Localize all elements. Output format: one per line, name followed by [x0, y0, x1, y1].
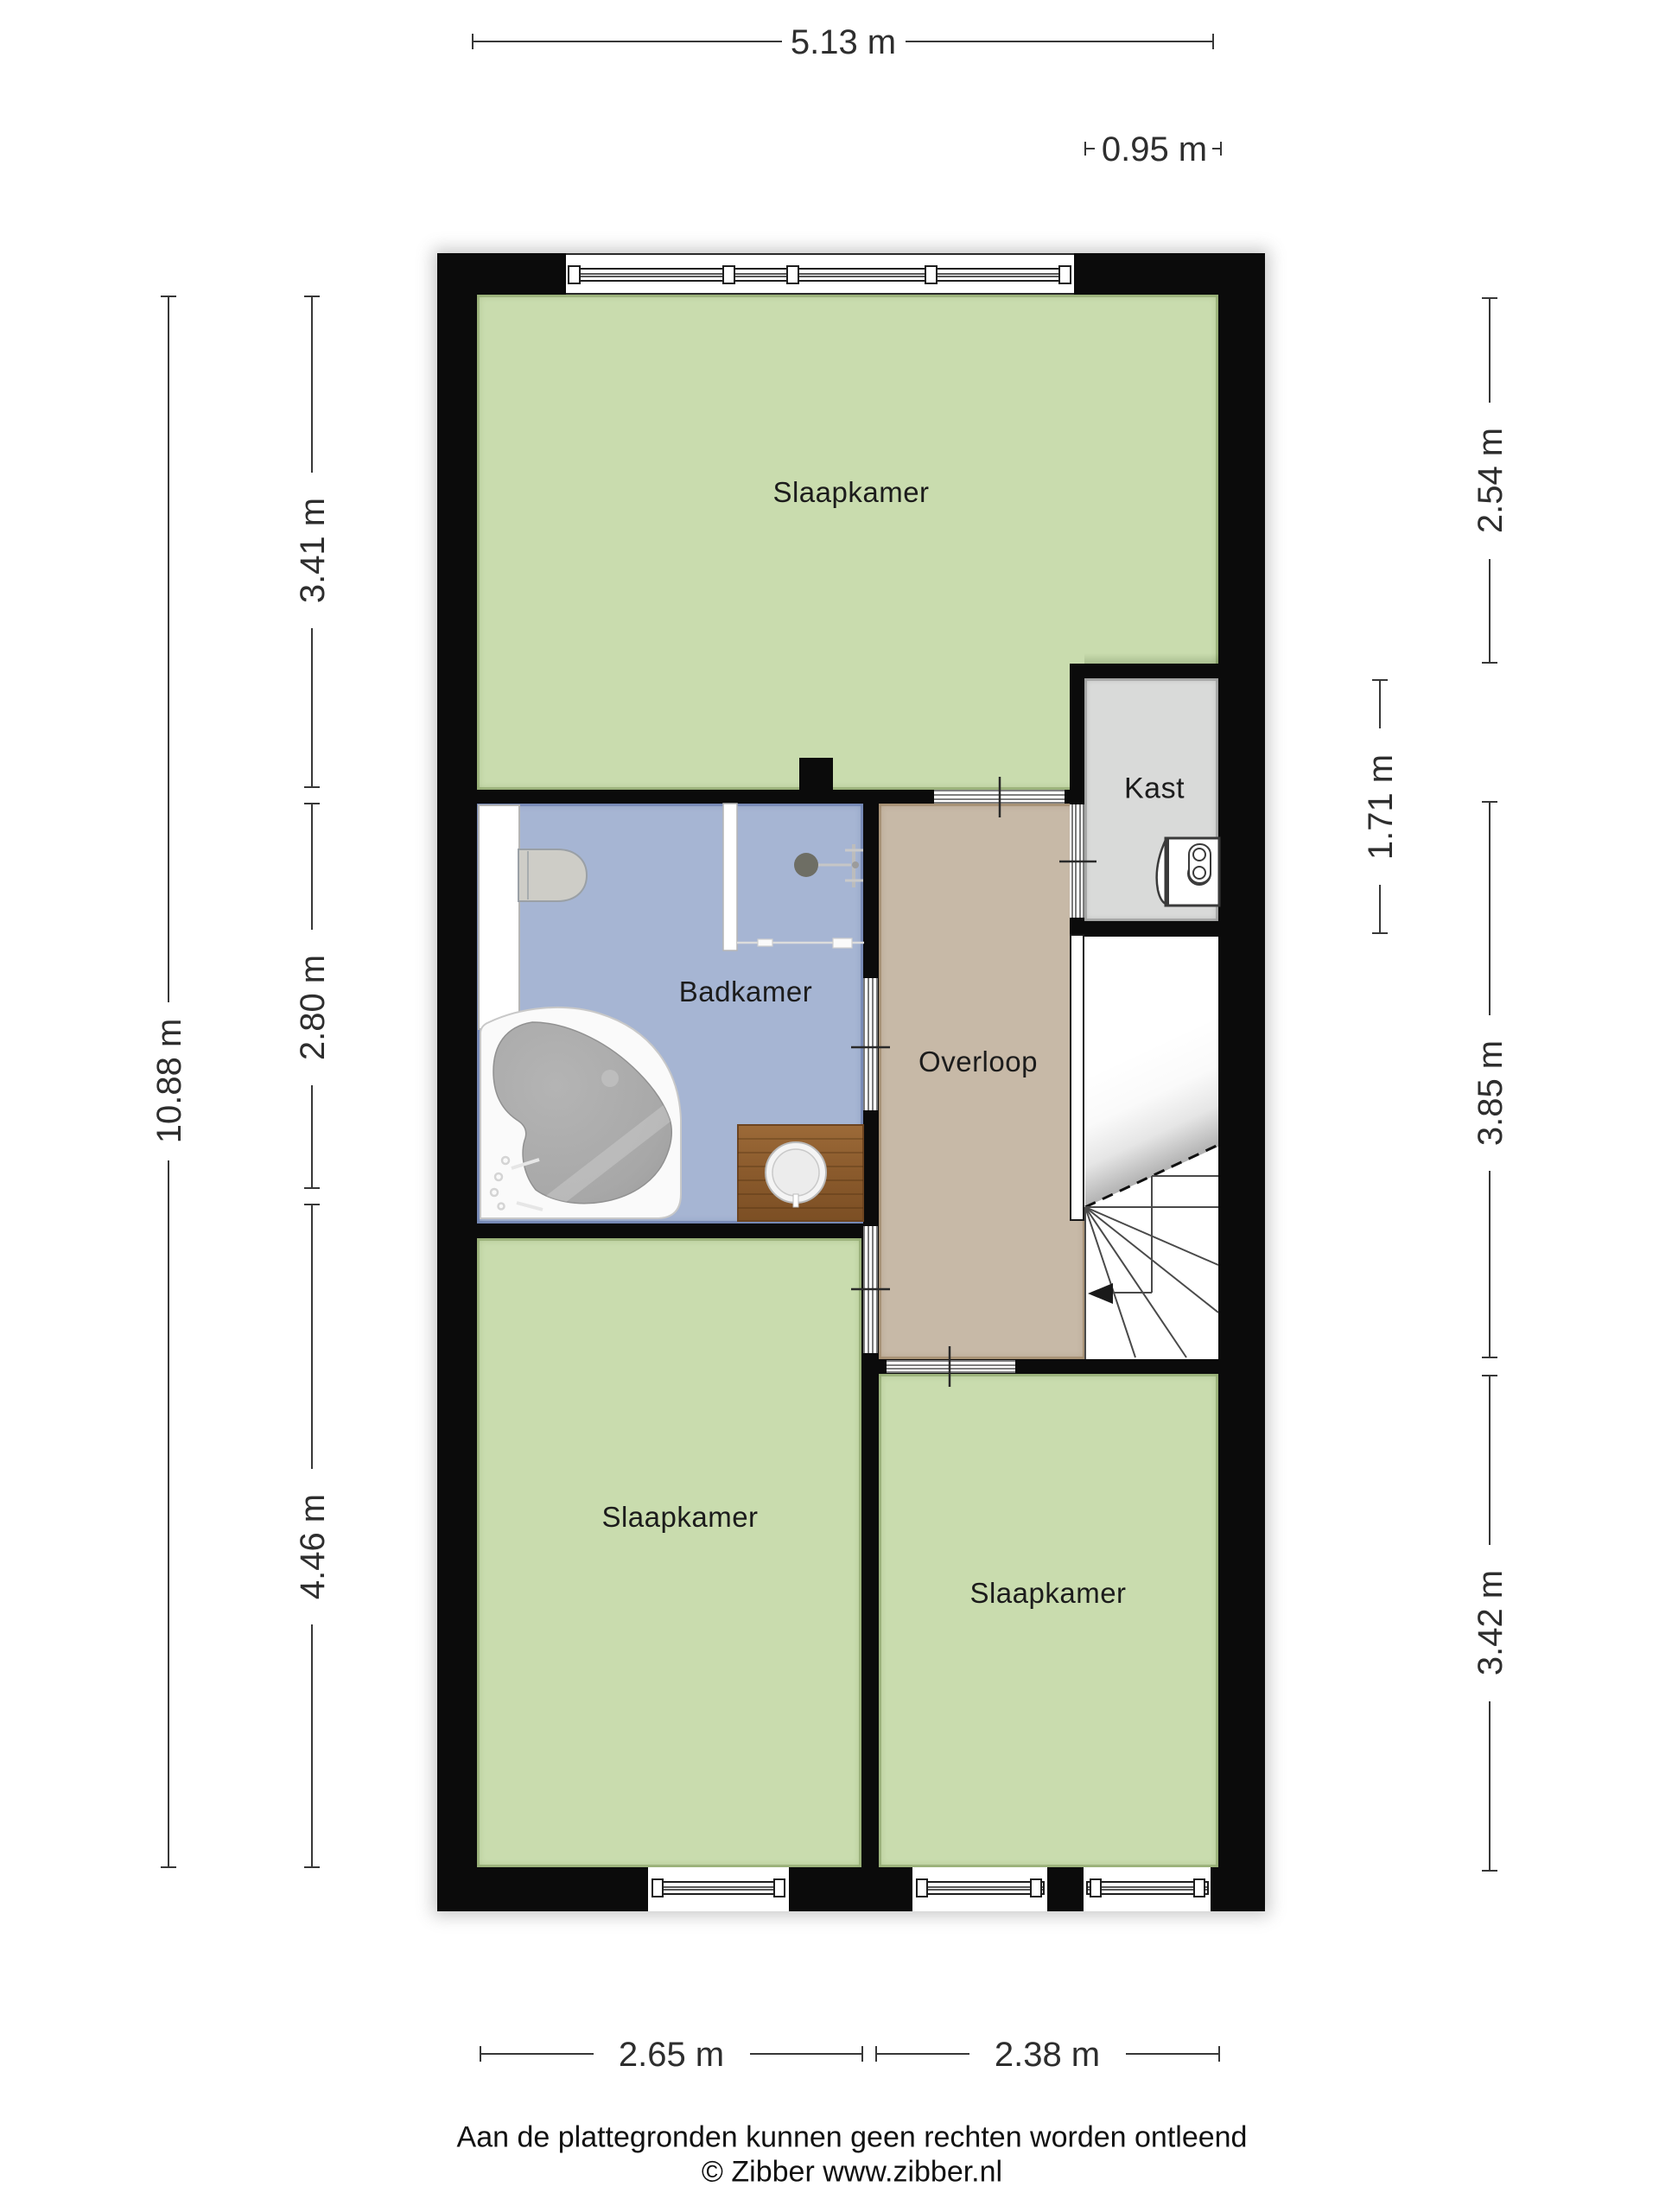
svg-text:1.71 m: 1.71 m [1362, 754, 1400, 860]
svg-text:2.54 m: 2.54 m [1471, 428, 1510, 533]
svg-text:3.42 m: 3.42 m [1471, 1570, 1510, 1675]
svg-text:2.65 m: 2.65 m [619, 2036, 724, 2074]
svg-text:3.85 m: 3.85 m [1471, 1040, 1510, 1146]
svg-text:0.95 m: 0.95 m [1102, 130, 1207, 168]
svg-text:10.88 m: 10.88 m [150, 1019, 188, 1144]
svg-text:2.38 m: 2.38 m [995, 2036, 1100, 2074]
svg-text:3.41 m: 3.41 m [294, 498, 332, 603]
svg-text:2.80 m: 2.80 m [294, 955, 332, 1060]
svg-text:5.13 m: 5.13 m [791, 23, 896, 61]
svg-text:4.46 m: 4.46 m [294, 1494, 332, 1599]
